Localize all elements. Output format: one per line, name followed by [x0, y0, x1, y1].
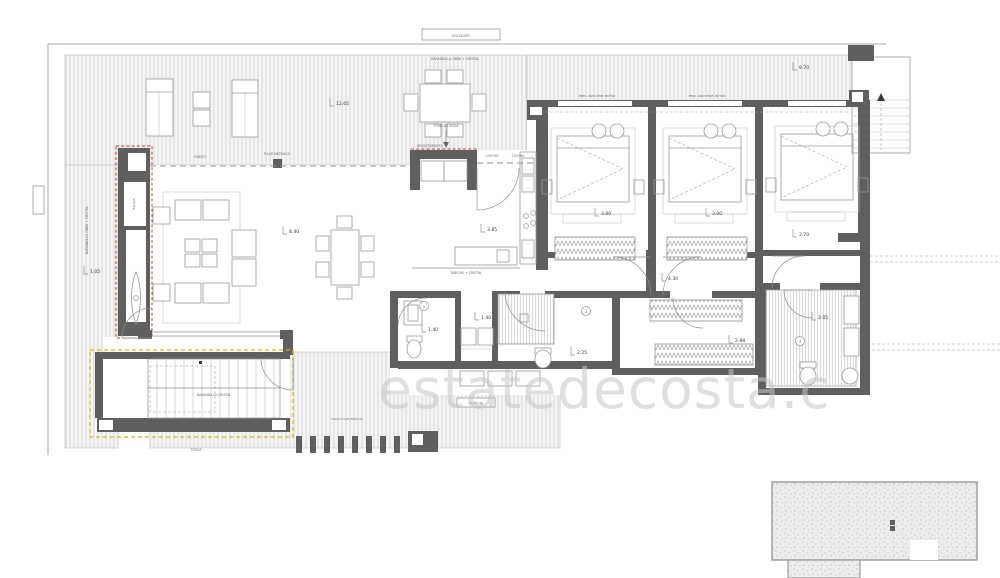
barandilla-cristal-label: BARANDILLA CRISTAL	[197, 393, 232, 397]
bidet-icon	[842, 368, 858, 384]
pers-motor-label-1: PERS. ABAT. PERF. MOTOR	[579, 94, 615, 98]
washbasin	[404, 301, 422, 325]
svg-text:1.05: 1.05	[90, 269, 100, 275]
sun-lounger	[232, 80, 258, 137]
sill-a-label: 230+60	[486, 154, 499, 158]
svg-text:3: 3	[799, 340, 801, 344]
marker-1: 1	[420, 302, 429, 311]
svg-text:2.70: 2.70	[799, 232, 809, 238]
svg-text:1: 1	[423, 305, 425, 309]
svg-text:12.65: 12.65	[336, 101, 349, 107]
marker-3: 3	[796, 337, 805, 346]
wardrobe	[555, 237, 635, 260]
svg-text:2.88: 2.88	[735, 338, 745, 344]
site-plan-inset	[772, 482, 977, 578]
svg-text:4.30: 4.30	[668, 276, 678, 282]
svg-text:2.25: 2.25	[577, 350, 587, 356]
voladizo-label: VOLADIZO	[452, 34, 471, 38]
svg-text:9.70: 9.70	[799, 65, 809, 71]
svg-text:8.40: 8.40	[289, 229, 299, 235]
pers-motor-label-2: PERS. ABAT. PERF. MOTOR	[689, 94, 725, 98]
kitchen-island	[455, 247, 517, 265]
svg-text:3.85: 3.85	[487, 227, 497, 233]
wardrobe	[667, 237, 747, 260]
tosca-label: TOSCA	[190, 448, 203, 452]
revestimiento-nook-label: REVESTIMIENTO	[417, 144, 443, 148]
sill-b-label: 230+60	[512, 154, 525, 158]
svg-text:2: 2	[585, 310, 587, 314]
sun-lounger	[146, 79, 173, 136]
hueco-label: HUECO	[194, 155, 206, 159]
marker-2: 2	[582, 307, 591, 316]
svg-text:1.40: 1.40	[481, 315, 491, 321]
svg-text:3.00: 3.00	[712, 211, 722, 217]
svg-text:2.05: 2.05	[818, 315, 828, 321]
tabique-label: TABIQUE + CRISTAL	[449, 271, 482, 275]
toma-agua-label: TOMA DE AGUA	[433, 124, 460, 128]
kitchen-counter	[520, 152, 536, 264]
barandilla-left-label: BARANDILLA OBRA + CRISTAL	[85, 206, 89, 254]
svg-text:1.40: 1.40	[428, 327, 438, 333]
vigas-label: VIGAS H.LAM 300x110	[331, 417, 363, 421]
toilet-icon	[407, 336, 422, 358]
svg-text:3.00: 3.00	[601, 211, 611, 217]
wardrobe	[650, 300, 742, 321]
floor-plan-page: VOLADIZO	[0, 0, 1000, 578]
baldas-label: BALDAS	[132, 198, 136, 209]
watermark: estatedecosta.c	[378, 357, 830, 421]
floor-plan-svg: VOLADIZO	[0, 0, 1000, 578]
pilar-label: PILAR METÁLICO	[264, 151, 291, 156]
revestimiento-wall-label: REVESTIMIENTO	[119, 255, 123, 281]
barandilla-top-label: BARANDILLA OBRA + CRISTAL	[431, 57, 479, 61]
